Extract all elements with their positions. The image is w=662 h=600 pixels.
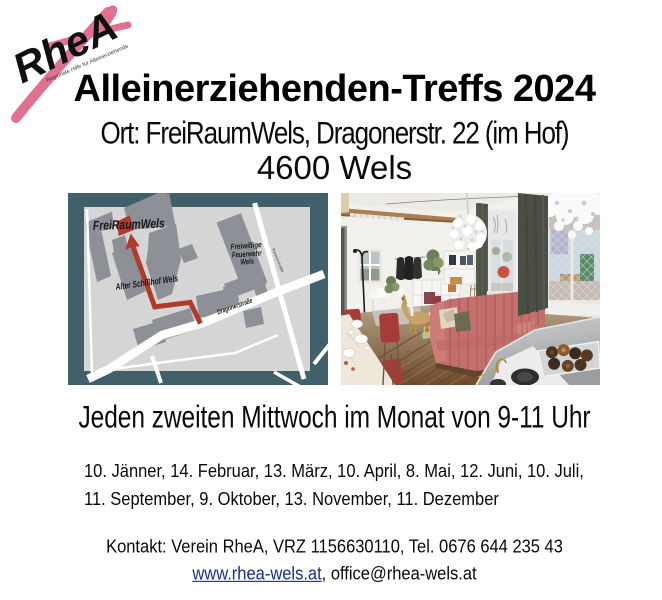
svg-text:Wels: Wels [240, 257, 255, 267]
svg-text:FreiRaumWels: FreiRaumWels [93, 215, 165, 233]
